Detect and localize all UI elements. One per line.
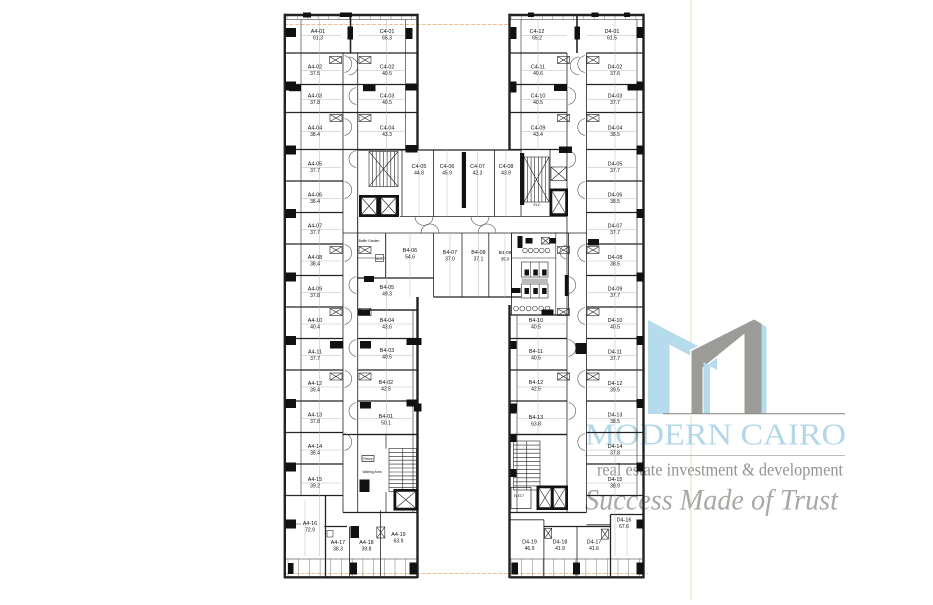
svg-text:54.6: 54.6 xyxy=(405,255,415,261)
svg-text:A4-12: A4-12 xyxy=(308,381,322,387)
svg-text:D4-06: D4-06 xyxy=(608,193,623,199)
svg-text:B4-13: B4-13 xyxy=(529,415,543,421)
svg-text:38.5: 38.5 xyxy=(610,262,620,268)
svg-text:Waiting Area: Waiting Area xyxy=(362,470,381,474)
svg-text:40.5: 40.5 xyxy=(382,355,392,361)
svg-text:40.5: 40.5 xyxy=(382,100,392,106)
svg-text:BOX: BOX xyxy=(376,257,382,261)
svg-text:38.3: 38.3 xyxy=(333,547,343,553)
svg-text:B4-01: B4-01 xyxy=(379,414,393,420)
svg-text:A4-03: A4-03 xyxy=(308,94,322,100)
svg-text:C4-10: C4-10 xyxy=(531,94,546,100)
svg-text:ELECT: ELECT xyxy=(514,494,524,498)
svg-text:49.3: 49.3 xyxy=(382,292,392,298)
svg-text:65.3: 65.3 xyxy=(382,36,392,42)
svg-text:44.8: 44.8 xyxy=(414,171,424,177)
svg-text:37.6: 37.6 xyxy=(610,71,620,77)
svg-text:37.7: 37.7 xyxy=(310,168,320,174)
svg-text:39.8: 39.8 xyxy=(362,547,372,553)
svg-text:B4-07: B4-07 xyxy=(443,250,457,256)
svg-text:45.9: 45.9 xyxy=(442,171,452,177)
svg-text:37.7: 37.7 xyxy=(610,230,620,236)
svg-text:D4-05: D4-05 xyxy=(608,162,623,168)
svg-text:38.4: 38.4 xyxy=(310,199,320,205)
svg-text:A4-18: A4-18 xyxy=(359,540,373,546)
svg-text:43.9: 43.9 xyxy=(501,171,511,177)
svg-text:B4-10: B4-10 xyxy=(529,318,543,324)
svg-text:43.4: 43.4 xyxy=(533,132,543,138)
svg-text:41.6: 41.6 xyxy=(589,546,599,552)
svg-text:D4-16: D4-16 xyxy=(617,518,632,524)
svg-text:C4-02: C4-02 xyxy=(380,65,395,71)
svg-text:A4-19: A4-19 xyxy=(391,532,405,538)
svg-text:C4-05: C4-05 xyxy=(412,164,427,170)
svg-text:C4-07: C4-07 xyxy=(470,164,485,170)
svg-text:40.5: 40.5 xyxy=(533,100,543,106)
svg-text:40.6: 40.6 xyxy=(533,71,543,77)
svg-text:A4-01: A4-01 xyxy=(311,29,325,35)
svg-text:37.7: 37.7 xyxy=(310,356,320,362)
svg-text:A4-10: A4-10 xyxy=(308,318,322,324)
svg-text:35.0: 35.0 xyxy=(501,257,510,262)
svg-text:63.9: 63.9 xyxy=(394,539,404,545)
svg-text:40.5: 40.5 xyxy=(531,356,541,362)
svg-text:D4-14: D4-14 xyxy=(608,444,623,450)
svg-text:D4-19: D4-19 xyxy=(522,540,537,546)
svg-text:A4-08: A4-08 xyxy=(308,255,322,261)
svg-text:A4-06: A4-06 xyxy=(308,193,322,199)
svg-text:D4-03: D4-03 xyxy=(608,94,623,100)
svg-text:38.5: 38.5 xyxy=(610,419,620,425)
svg-text:D4-13: D4-13 xyxy=(608,413,623,419)
svg-text:39.5: 39.5 xyxy=(610,388,620,394)
svg-text:B4-12: B4-12 xyxy=(529,380,543,386)
svg-text:A4-16: A4-16 xyxy=(303,521,317,527)
svg-text:D4-11: D4-11 xyxy=(608,350,622,356)
svg-text:C4-12: C4-12 xyxy=(530,29,545,35)
svg-text:B4-11: B4-11 xyxy=(529,349,543,355)
svg-text:40.5: 40.5 xyxy=(382,71,392,77)
svg-text:37.1: 37.1 xyxy=(474,257,484,263)
svg-text:38.5: 38.5 xyxy=(610,199,620,205)
svg-text:D4-18: D4-18 xyxy=(553,540,568,546)
svg-text:C4-04: C4-04 xyxy=(380,126,395,132)
svg-text:43.6: 43.6 xyxy=(382,325,392,331)
svg-text:40.4: 40.4 xyxy=(310,325,320,331)
svg-text:D4-15: D4-15 xyxy=(608,477,623,483)
svg-text:Baffle Garden: Baffle Garden xyxy=(359,239,380,243)
svg-text:A4-14: A4-14 xyxy=(308,444,322,450)
svg-text:B4-09: B4-09 xyxy=(499,250,512,256)
svg-text:A4-17: A4-17 xyxy=(331,540,345,546)
svg-text:B4-06: B4-06 xyxy=(403,248,417,254)
svg-text:46.9: 46.9 xyxy=(525,546,535,552)
svg-text:37.7: 37.7 xyxy=(610,100,620,106)
svg-text:A4-13: A4-13 xyxy=(308,413,322,419)
svg-text:43.3: 43.3 xyxy=(382,132,392,138)
svg-text:38.5: 38.5 xyxy=(610,132,620,138)
svg-text:65.2: 65.2 xyxy=(532,36,542,42)
svg-text:A4-04: A4-04 xyxy=(308,126,322,132)
svg-text:37.8: 37.8 xyxy=(310,419,320,425)
svg-text:38.4: 38.4 xyxy=(310,451,320,457)
svg-text:D4-12: D4-12 xyxy=(608,381,623,387)
svg-text:37.7: 37.7 xyxy=(310,230,320,236)
svg-text:C4-03: C4-03 xyxy=(380,94,395,100)
svg-text:D4-07: D4-07 xyxy=(608,224,623,230)
svg-text:D4-02: D4-02 xyxy=(608,65,623,71)
svg-text:37.8: 37.8 xyxy=(310,293,320,299)
svg-text:63.8: 63.8 xyxy=(531,422,541,428)
svg-text:Success Made of Trust: Success Made of Trust xyxy=(585,485,839,517)
svg-text:42.3: 42.3 xyxy=(473,171,483,177)
svg-text:A4-15: A4-15 xyxy=(308,477,322,483)
svg-text:67.6: 67.6 xyxy=(619,524,629,530)
svg-text:37.8: 37.8 xyxy=(610,451,620,457)
svg-text:40.5: 40.5 xyxy=(610,325,620,331)
svg-text:39.4: 39.4 xyxy=(310,388,320,394)
svg-text:39.2: 39.2 xyxy=(310,484,320,490)
svg-text:D4-17: D4-17 xyxy=(587,540,602,546)
svg-text:42.5: 42.5 xyxy=(381,387,391,393)
svg-text:D4-01: D4-01 xyxy=(605,29,620,35)
svg-text:61.3: 61.3 xyxy=(313,36,323,42)
svg-text:38.4: 38.4 xyxy=(310,262,320,268)
svg-text:B4-08: B4-08 xyxy=(471,250,485,256)
svg-text:41.9: 41.9 xyxy=(555,546,565,552)
svg-text:C4-08: C4-08 xyxy=(499,164,514,170)
svg-text:A4-05: A4-05 xyxy=(308,162,322,168)
svg-text:37.7: 37.7 xyxy=(610,356,620,362)
svg-text:38.4: 38.4 xyxy=(310,132,320,138)
svg-text:37.8: 37.8 xyxy=(310,100,320,106)
svg-text:Recep: Recep xyxy=(363,457,372,461)
svg-text:B4-02: B4-02 xyxy=(379,380,393,386)
svg-text:37.7: 37.7 xyxy=(610,168,620,174)
svg-text:B4-04: B4-04 xyxy=(380,318,394,324)
svg-text:A4-02: A4-02 xyxy=(308,65,322,71)
svg-text:B4-05: B4-05 xyxy=(380,285,394,291)
svg-text:61.5: 61.5 xyxy=(607,36,617,42)
svg-text:C4-01: C4-01 xyxy=(380,29,395,35)
svg-text:real estate investment & devel: real estate investment & development xyxy=(597,460,843,480)
svg-text:MODERN CAIRO: MODERN CAIRO xyxy=(585,418,846,452)
svg-text:50.1: 50.1 xyxy=(381,421,391,427)
svg-text:37.5: 37.5 xyxy=(310,71,320,77)
svg-text:C4-06: C4-06 xyxy=(440,164,455,170)
svg-text:A4-11: A4-11 xyxy=(308,350,322,356)
svg-text:C4-09: C4-09 xyxy=(531,126,546,132)
svg-text:D4-10: D4-10 xyxy=(608,318,623,324)
svg-text:37.0: 37.0 xyxy=(445,257,455,263)
svg-text:D4-04: D4-04 xyxy=(608,126,623,132)
svg-text:72.9: 72.9 xyxy=(305,528,315,534)
svg-text:42.5: 42.5 xyxy=(531,387,541,393)
svg-text:37.7: 37.7 xyxy=(610,293,620,299)
svg-text:D4-09: D4-09 xyxy=(608,287,623,293)
svg-text:C4-11: C4-11 xyxy=(531,65,545,71)
svg-text:A4-09: A4-09 xyxy=(308,287,322,293)
svg-text:B4-03: B4-03 xyxy=(380,348,394,354)
svg-text:38.9: 38.9 xyxy=(610,484,620,490)
svg-text:A4-07: A4-07 xyxy=(308,224,322,230)
svg-text:D4-08: D4-08 xyxy=(608,255,623,261)
svg-text:40.5: 40.5 xyxy=(531,325,541,331)
svg-text:ELC: ELC xyxy=(534,203,541,207)
